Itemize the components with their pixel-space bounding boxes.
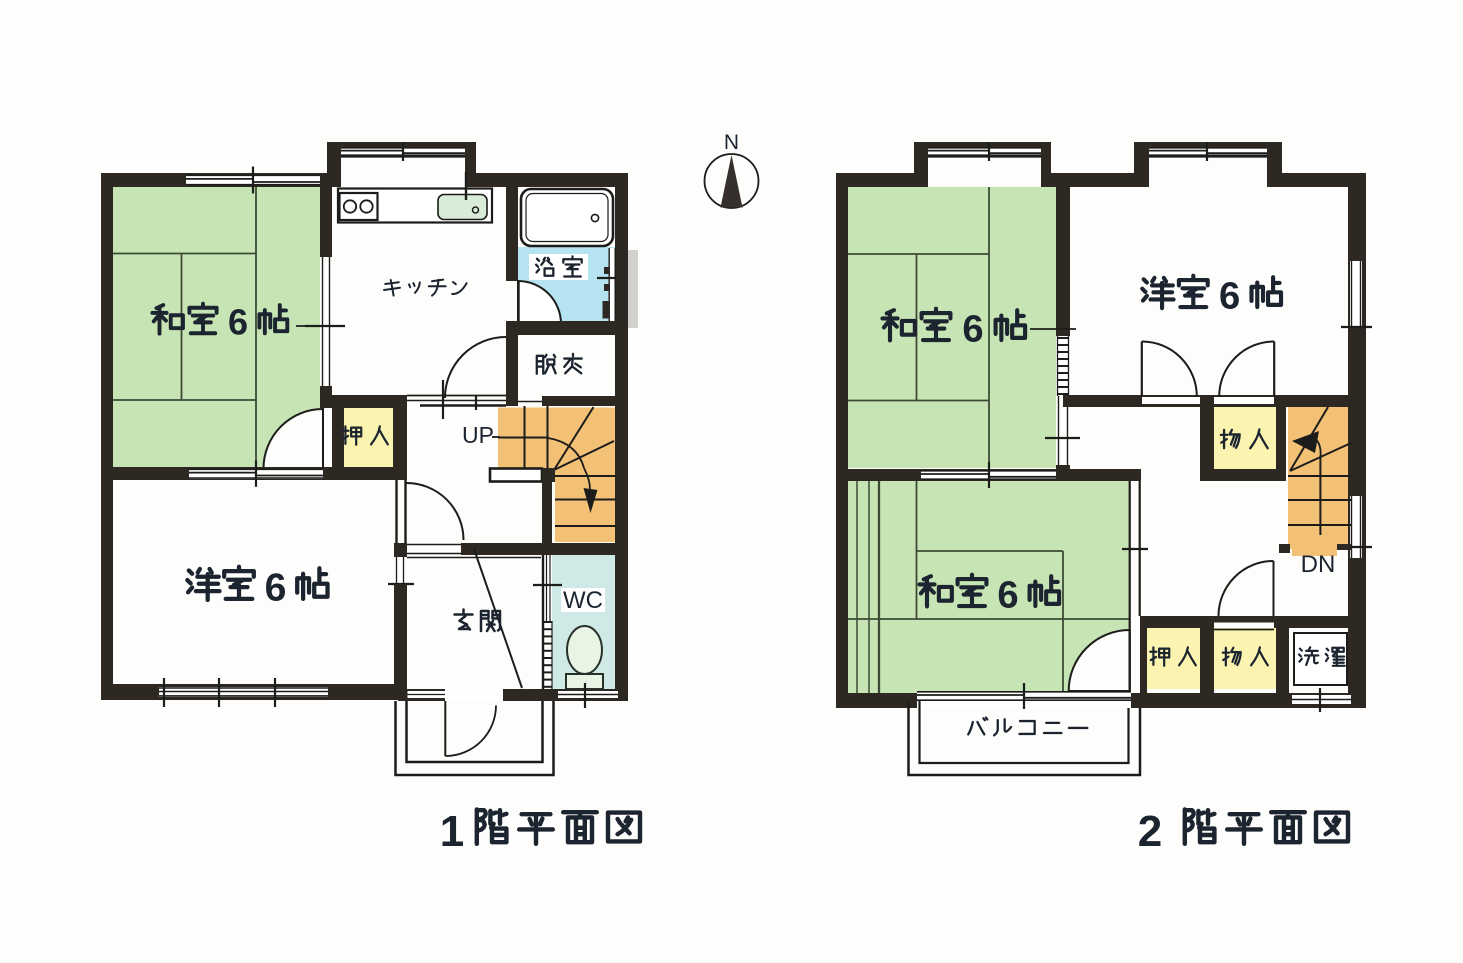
svg-text:DN: DN [1301,551,1336,578]
svg-text:UP: UP [462,422,494,448]
svg-text:6: 6 [265,565,287,609]
svg-text:N: N [724,131,739,154]
svg-text:2: 2 [1138,807,1162,856]
svg-text:6: 6 [1219,274,1240,317]
svg-text:1: 1 [440,807,464,856]
svg-text:WC: WC [563,587,603,614]
svg-text:6: 6 [228,302,248,343]
svg-text:6: 6 [997,573,1018,616]
svg-text:6: 6 [962,307,983,350]
